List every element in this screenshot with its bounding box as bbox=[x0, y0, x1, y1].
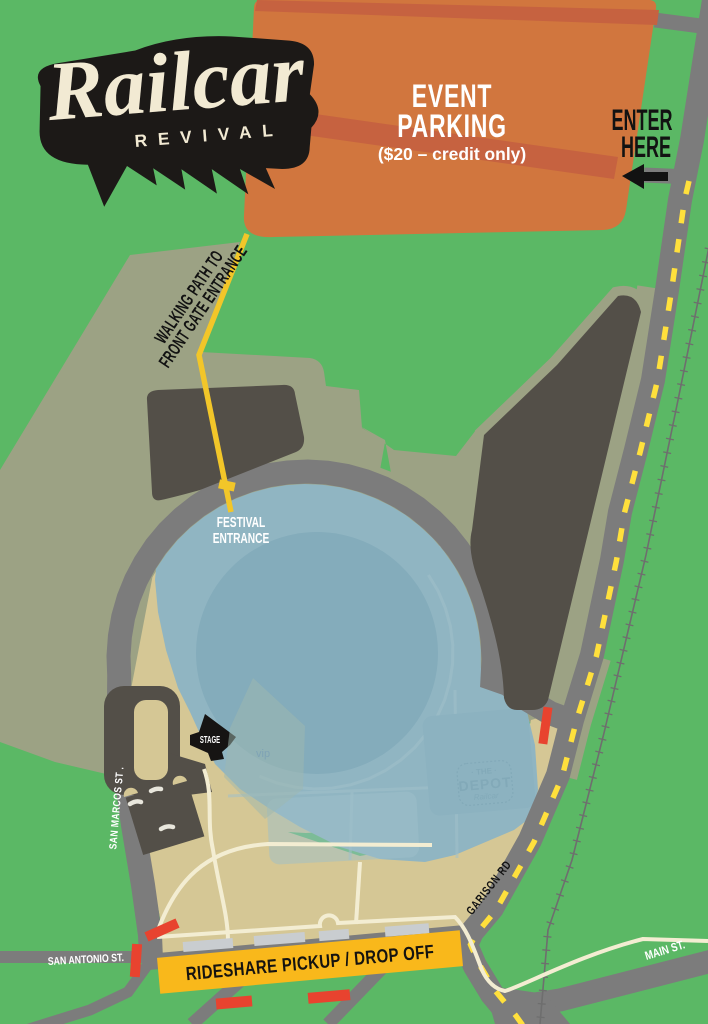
svg-text:FESTIVAL: FESTIVAL bbox=[217, 513, 266, 531]
svg-text:STAGE: STAGE bbox=[200, 735, 221, 746]
svg-text:($20 – credit only): ($20 – credit only) bbox=[378, 144, 526, 164]
svg-text:PARKING: PARKING bbox=[397, 108, 507, 144]
svg-text:ENTRANCE: ENTRANCE bbox=[213, 529, 270, 547]
svg-text:HERE: HERE bbox=[621, 132, 671, 165]
svg-text:vip: vip bbox=[256, 748, 270, 760]
